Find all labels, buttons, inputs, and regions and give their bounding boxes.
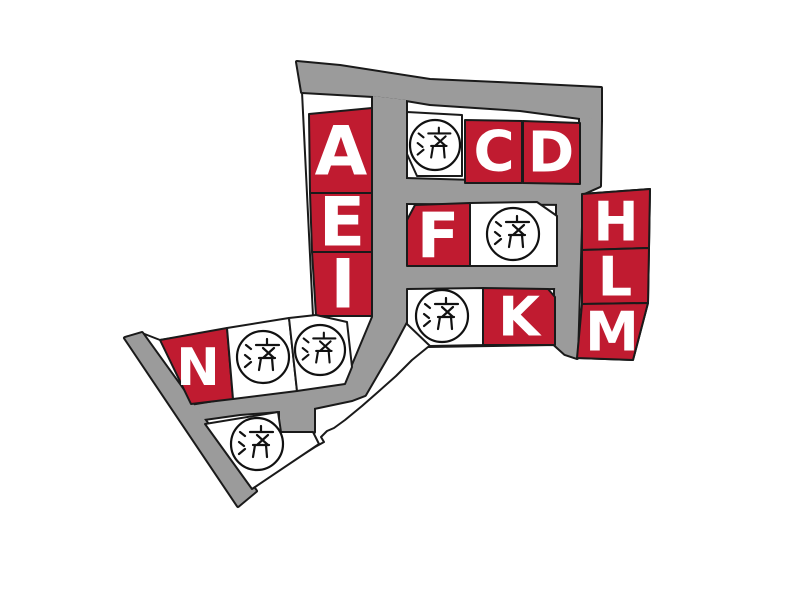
lot-H[interactable] — [582, 189, 650, 250]
lot-F[interactable] — [407, 203, 470, 266]
lot-L[interactable] — [582, 248, 649, 304]
lot-C[interactable] — [465, 120, 522, 183]
sold-badge — [487, 208, 539, 260]
lot-A[interactable] — [309, 108, 372, 193]
sold-badge — [231, 418, 283, 470]
sold-badge — [295, 325, 345, 375]
lot-map-canvas: ACDEFHIKLMN — [0, 0, 800, 600]
lot-M[interactable] — [577, 303, 648, 360]
lot-E[interactable] — [310, 193, 372, 252]
sold-badge — [416, 290, 468, 342]
lot-K[interactable] — [483, 288, 555, 345]
lot-I[interactable] — [312, 252, 372, 316]
sold-badge — [237, 331, 289, 383]
lot-D[interactable] — [523, 121, 580, 184]
subdivision-lot-map: ACDEFHIKLMN — [0, 0, 800, 600]
sold-badge — [410, 120, 460, 170]
